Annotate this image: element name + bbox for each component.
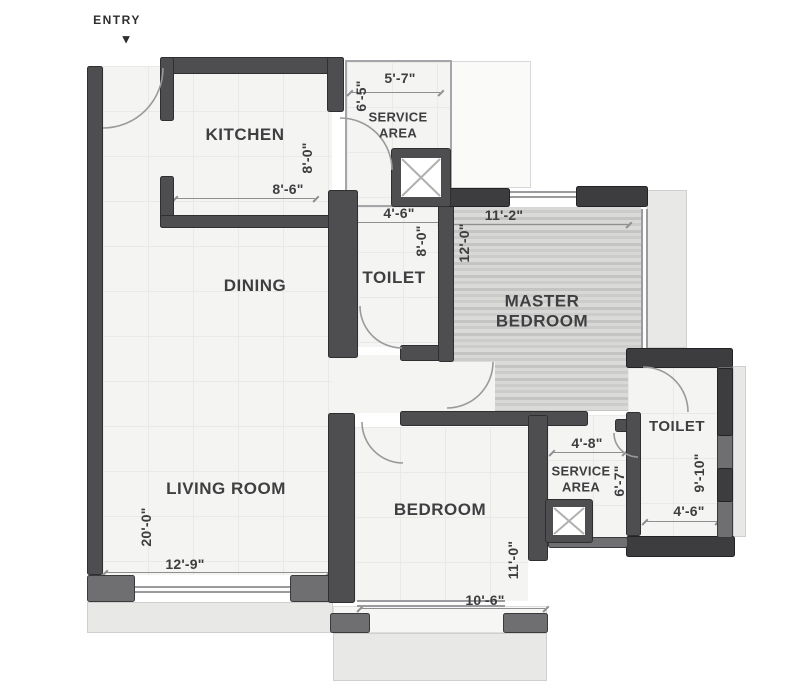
ledge-right-of-toilet [733,366,746,537]
dim-kitchen-depth: 8'-0" [299,142,315,173]
dim-toilet-depth: 8'-0" [413,225,429,256]
label-master-bedroom: MASTER BEDROOM [496,292,588,333]
dim-service-right-depth: 6'-7" [611,465,627,496]
label-toilet-right: TOILET [649,418,705,436]
dimline-service-right-width [552,452,624,453]
label-service-area-right: SERVICE AREA [552,463,611,494]
floor-master-door-swing [447,362,495,411]
dimline-living-width [105,572,328,573]
wall-master-bottom [400,411,588,426]
entry-label: ENTRY [93,13,141,27]
window-master-right [641,209,648,349]
dimline-toilet-right-width [645,521,717,522]
wall-toilet-right-outer-pad-top [717,368,733,436]
label-dining: DINING [224,276,287,296]
wall-bedroom-balcony-stub-left [330,613,370,633]
duct-shaft-bottom [546,500,592,542]
label-kitchen: KITCHEN [205,125,284,145]
dim-toilet-right-depth: 9'-10" [691,453,707,492]
wall-master-left [438,198,454,362]
wall-toilet-right-bottom [626,536,735,557]
floor-plan: ENTRY ▼ KITCHEN SERVICE AREA TOILET MAST… [0,0,800,692]
dim-service-right-width: 4'-8" [571,435,602,451]
dim-toilet-width: 4'-6" [383,205,414,221]
dimline-kitchen-width [175,198,315,199]
dim-bedroom-width: 10'-6" [465,592,504,608]
balcony-right-of-master [647,190,687,348]
wall-kitchen-service-stub [327,57,344,112]
dim-service-top-width: 5'-7" [384,70,415,86]
wall-dining-toilet [328,190,358,358]
dim-living-depth: 20'-0" [138,507,154,546]
dim-living-width: 12'-9" [165,556,204,572]
wall-bedroom-balcony-stub-right [503,613,548,633]
entry-arrow-icon: ▼ [120,33,133,46]
wall-kitchen-left-upper [160,57,174,121]
dim-master-depth: 12'-0" [456,223,472,262]
wall-toilet-right-top [626,348,733,368]
open-area-top-right [451,61,531,188]
dim-service-top-depth: 6'-5" [353,80,369,111]
wall-kitchen-top [160,57,344,74]
label-living-room: LIVING ROOM [166,479,286,499]
dim-toilet-right-width: 4'-6" [673,503,704,519]
wall-living-bedroom-divider [328,413,355,603]
dim-bedroom-depth: 11'-0" [505,541,521,579]
wall-toilet-right-outer-pad-bottom [717,468,733,502]
window-living-room [135,586,290,593]
dimline-bedroom-width [360,608,545,609]
wall-corner-bottom-left [87,575,135,602]
wall-bedroom-right [528,415,548,561]
balcony-below-living-room [87,602,333,633]
wall-toilet-right-left [626,412,641,536]
wall-kitchen-bottom [160,215,332,228]
dimline-toilet-width [352,222,440,223]
floor-corridor [332,355,454,413]
duct-shaft-top [392,149,450,206]
wall-master-top-2 [576,186,648,207]
dim-master-width: 11'-2" [485,207,523,223]
dimline-master-width [450,224,628,225]
wall-stub-living-bottom-right [290,575,333,602]
window-master-top [508,191,578,198]
label-service-area-top: SERVICE AREA [369,109,428,140]
wall-left-outer [87,66,103,575]
dim-kitchen-width: 8'-6" [272,181,303,197]
balcony-below-bedroom [333,633,547,681]
label-toilet: TOILET [362,268,425,288]
label-bedroom: BEDROOM [394,500,486,520]
